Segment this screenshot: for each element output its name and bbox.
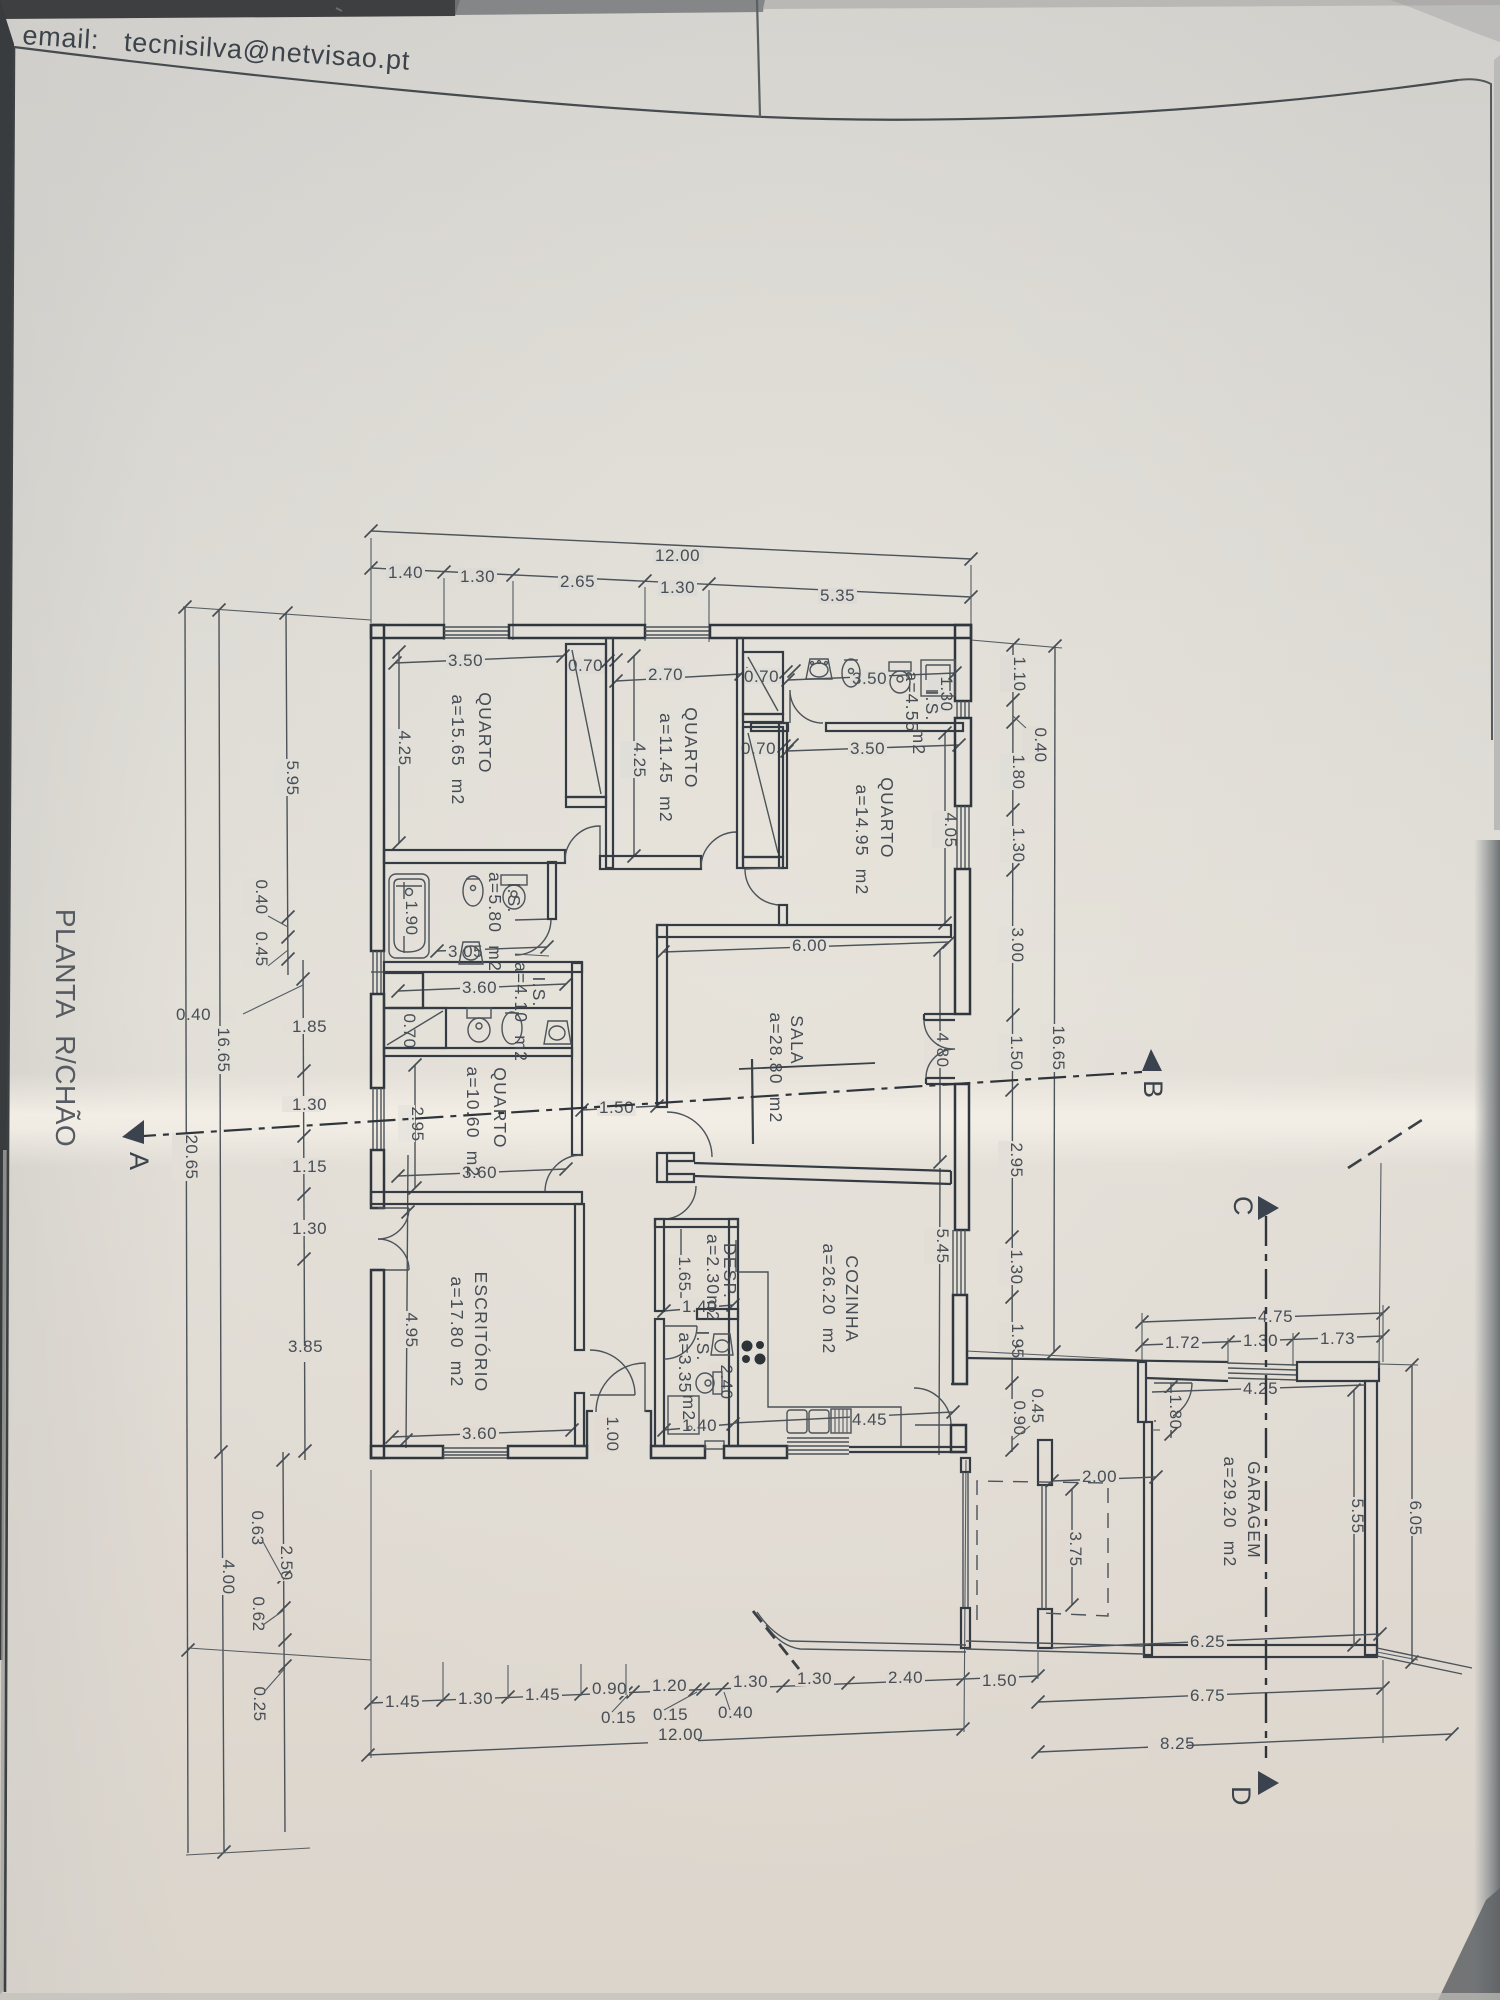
svg-text:a=3.35: a=3.35 [675,1332,695,1393]
svg-text:QUARTO: QUARTO [475,692,495,773]
svg-text:6.05: 6.05 [1406,1500,1425,1535]
svg-text:a=4.55: a=4.55 [902,671,922,732]
svg-text:a=5.80 m2: a=5.80 m2 [485,872,505,972]
svg-text:GARAGEM: GARAGEM [1244,1461,1264,1559]
svg-text:5.55: 5.55 [1348,1498,1367,1533]
svg-text:1.45: 1.45 [525,1685,560,1704]
svg-text:C: C [1228,1196,1258,1216]
svg-text:12.00: 12.00 [655,546,700,565]
svg-text:1.30: 1.30 [660,578,695,597]
svg-text:16.65: 16.65 [1049,1025,1068,1070]
svg-text:a=29.20 m2: a=29.20 m2 [1220,1457,1240,1568]
svg-text:0.45: 0.45 [1028,1388,1047,1423]
svg-text:20.65: 20.65 [182,1134,201,1179]
svg-text:4.00: 4.00 [219,1559,238,1594]
svg-text:a=26.20 m2: a=26.20 m2 [819,1244,839,1355]
svg-text:I.S.: I.S. [504,882,524,913]
svg-text:3.75: 3.75 [1066,1531,1085,1566]
svg-text:6.75: 6.75 [1190,1686,1225,1705]
svg-text:A: A [124,1152,154,1170]
svg-text:4.45: 4.45 [852,1410,887,1429]
svg-text:8.25: 8.25 [1160,1734,1195,1753]
svg-text:5.45: 5.45 [933,1228,952,1263]
svg-text:I.S.: I.S. [922,690,942,721]
svg-text:0.15: 0.15 [601,1708,636,1727]
svg-text:a=2.30m2: a=2.30m2 [703,1234,723,1322]
svg-text:1.40: 1.40 [388,563,423,582]
svg-text:1.65: 1.65 [675,1256,694,1291]
svg-text:a=4.10 m2: a=4.10 m2 [511,962,531,1062]
svg-text:1.50: 1.50 [599,1098,634,1117]
svg-text:3.50: 3.50 [852,669,887,688]
svg-text:1.30: 1.30 [1243,1331,1278,1350]
svg-text:0.40: 0.40 [176,1005,211,1024]
svg-text:4.25: 4.25 [630,742,649,777]
svg-text:3.50: 3.50 [448,651,483,670]
svg-text:0.25: 0.25 [250,1686,269,1721]
svg-text:m2: m2 [909,729,929,756]
svg-text:0.15: 0.15 [653,1705,688,1724]
svg-text:1.85: 1.85 [292,1017,327,1036]
svg-text:0.90: 0.90 [1010,1400,1029,1435]
svg-text:3.60: 3.60 [462,978,497,997]
svg-text:1.80: 1.80 [1009,754,1028,789]
svg-text:0.62: 0.62 [249,1596,268,1631]
svg-text:ESCRITÓRIO: ESCRITÓRIO [471,1272,492,1393]
svg-text:1.10: 1.10 [1010,656,1029,691]
svg-text:m2: m2 [679,1395,699,1422]
svg-text:3.85: 3.85 [288,1337,323,1356]
svg-text:2.40: 2.40 [888,1668,923,1687]
svg-text:1.30: 1.30 [797,1669,832,1688]
svg-text:1.30: 1.30 [460,567,495,586]
svg-text:QUARTO: QUARTO [877,777,897,858]
svg-text:a=14.95 m2: a=14.95 m2 [852,785,872,896]
svg-text:2.95: 2.95 [1007,1142,1026,1177]
svg-text:1.72: 1.72 [1165,1333,1200,1352]
svg-text:1.15: 1.15 [292,1157,327,1176]
svg-text:2.95: 2.95 [408,1106,427,1141]
svg-text:QUARTO: QUARTO [490,1067,510,1148]
svg-text:1.90: 1.90 [402,900,421,935]
svg-text:5.95: 5.95 [283,760,302,795]
svg-text:a=15.65 m2: a=15.65 m2 [448,695,468,806]
svg-text:0.63: 0.63 [248,1510,267,1545]
svg-text:1.80: 1.80 [1166,1394,1185,1429]
svg-text:4.25: 4.25 [1243,1379,1278,1398]
svg-text:2.50: 2.50 [277,1545,296,1580]
svg-text:1.50: 1.50 [982,1671,1017,1690]
svg-text:6.25: 6.25 [1190,1632,1225,1651]
svg-text:12.00: 12.00 [658,1725,703,1744]
svg-text:0.40: 0.40 [1031,727,1050,762]
svg-text:5.35: 5.35 [820,586,855,605]
svg-text:1.45: 1.45 [385,1692,420,1711]
svg-text:2.70: 2.70 [648,665,683,684]
svg-text:a=11.45 m2: a=11.45 m2 [656,713,676,823]
svg-text:6.00: 6.00 [792,936,827,955]
svg-text:1.20: 1.20 [652,1676,687,1695]
svg-text:1.00: 1.00 [603,1416,622,1451]
svg-text:0.45: 0.45 [252,931,271,966]
svg-text:3.00: 3.00 [1008,927,1027,962]
svg-text:3.50: 3.50 [850,739,885,758]
svg-text:4.25: 4.25 [395,730,414,765]
svg-text:1.30: 1.30 [1009,827,1028,862]
svg-text:I.S.: I.S. [529,976,549,1007]
svg-text:B: B [1138,1080,1168,1098]
svg-text:0.40: 0.40 [718,1703,753,1722]
svg-text:I.S.: I.S. [693,1330,713,1361]
svg-text:2.65: 2.65 [560,572,595,591]
svg-text:1.30: 1.30 [1007,1249,1026,1284]
svg-text:3.60: 3.60 [462,1424,497,1443]
svg-text:1.50: 1.50 [1007,1035,1026,1070]
svg-text:16.65: 16.65 [214,1027,233,1072]
svg-text:1.30: 1.30 [733,1672,768,1691]
svg-text:a=17.80 m2: a=17.80 m2 [447,1277,467,1388]
svg-text:a=10.60 m2: a=10.60 m2 [463,1067,483,1178]
svg-text:0.40: 0.40 [252,879,271,914]
svg-text:PLANTA R/CHÃO: PLANTA R/CHÃO [50,909,81,1147]
svg-text:1.73: 1.73 [1320,1329,1355,1348]
svg-text:4.75: 4.75 [1258,1307,1293,1326]
svg-text:COZINHA: COZINHA [842,1255,862,1342]
svg-text:1.30: 1.30 [292,1095,327,1114]
svg-text:SALA: SALA [787,1015,807,1065]
svg-text:D: D [1226,1786,1256,1806]
svg-text:0.70: 0.70 [744,667,779,686]
svg-text:QUARTO: QUARTO [681,707,701,788]
svg-text:0.70: 0.70 [741,739,776,758]
svg-text:4.95: 4.95 [402,1312,421,1347]
svg-text:1.30: 1.30 [458,1689,493,1708]
svg-text:1.30: 1.30 [292,1219,327,1238]
svg-text:0.90: 0.90 [592,1679,627,1698]
